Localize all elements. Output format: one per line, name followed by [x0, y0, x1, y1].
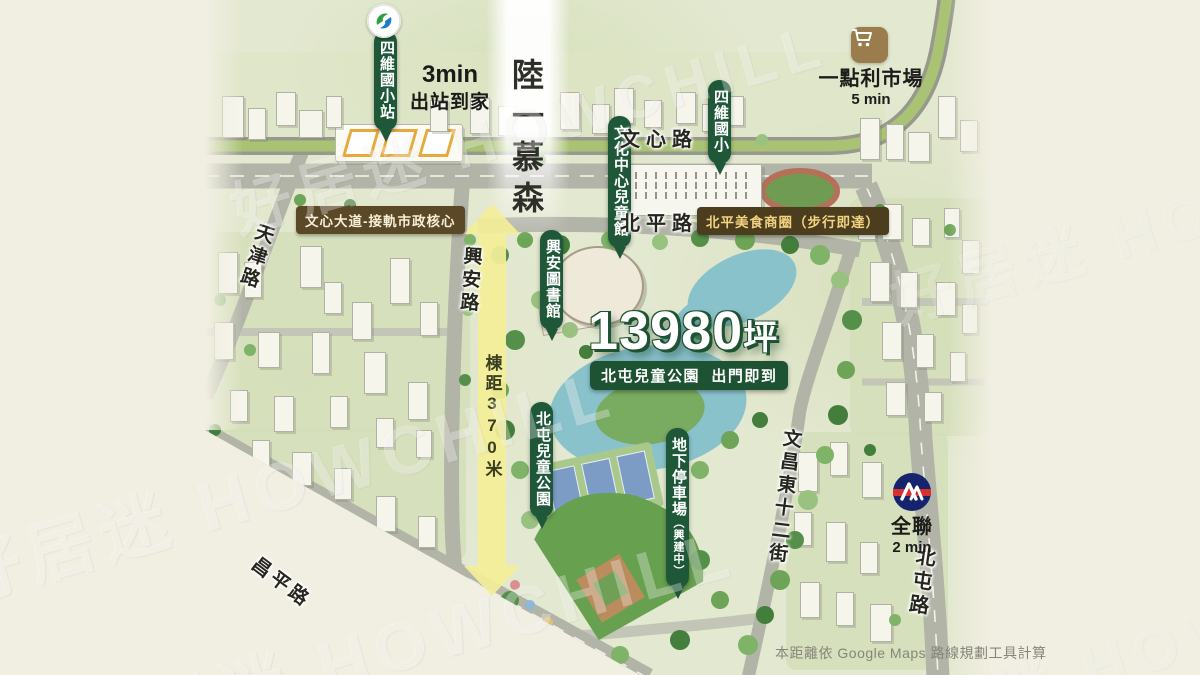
tree — [756, 134, 768, 146]
tree — [798, 490, 818, 510]
market-name: 全聯 — [882, 510, 942, 539]
poi-pill-parking: 地下停車場（興建中） — [666, 428, 689, 588]
playground-dot — [525, 600, 535, 610]
poi-pill-label: 地下停車場 — [670, 437, 687, 517]
building — [416, 430, 432, 458]
building — [258, 332, 280, 368]
road-label-wenxin: 文心路 — [620, 123, 698, 152]
park-area-figure: 13980坪 — [588, 300, 777, 362]
tree — [690, 550, 710, 570]
building — [800, 582, 820, 618]
tree — [889, 614, 901, 626]
tree — [652, 234, 668, 250]
building — [908, 132, 930, 162]
building — [214, 322, 234, 360]
building — [252, 440, 270, 476]
building — [924, 392, 942, 422]
tree — [756, 606, 774, 624]
building — [276, 92, 296, 126]
building — [962, 304, 978, 334]
poi-pill-label: 興安圖書館 — [544, 239, 561, 319]
tree — [711, 591, 729, 609]
station-walk-claim: 3min 出站到家 — [402, 62, 498, 114]
tree — [810, 245, 830, 265]
tree — [244, 344, 256, 356]
building — [836, 592, 854, 626]
building — [324, 282, 342, 314]
poi-pill-siwei-station: 四維國小站 — [374, 31, 397, 131]
building — [346, 520, 362, 546]
tree — [505, 330, 525, 350]
building — [950, 352, 966, 382]
tree — [864, 444, 876, 456]
area-unit: 坪 — [743, 319, 777, 357]
road-label-xingan: 興安路 — [454, 245, 486, 316]
building — [936, 282, 956, 316]
poi-pill-label: 北屯兒童公園 — [534, 411, 551, 507]
building — [862, 462, 882, 498]
tree — [738, 635, 758, 655]
station-pill-label: 四維國小站 — [378, 40, 395, 120]
building — [334, 468, 352, 500]
tree — [721, 431, 739, 449]
tree — [670, 630, 690, 650]
poi-pill-beitun-park: 北屯兒童公園 — [530, 402, 553, 518]
building — [299, 110, 323, 138]
banner-wenxin-blvd: 文心大道-接軌市政核心 — [296, 206, 465, 234]
building — [420, 302, 438, 336]
building — [222, 96, 244, 138]
building — [274, 396, 294, 432]
tree — [501, 591, 519, 609]
distance-disclaimer: 本距離依 Google Maps 路線規劃工具計算 — [775, 643, 1047, 663]
banner-beiping-food: 北平美食商圈（步行即達） — [697, 207, 889, 235]
road-label-changping: 昌平路 — [247, 550, 318, 613]
building — [300, 500, 316, 528]
tree — [816, 446, 834, 464]
building — [826, 522, 846, 562]
market-callout-yidianli: 一點利市場 5 min — [816, 62, 926, 108]
building — [916, 334, 934, 368]
playground-dot — [543, 617, 553, 627]
project-name: 陸一慕森 — [503, 58, 549, 222]
building — [390, 258, 410, 304]
distance-arrow-label: 棟距370米 — [480, 354, 505, 480]
building — [962, 240, 980, 274]
school-track — [763, 171, 837, 211]
market-name: 一點利市場 — [816, 62, 926, 91]
building — [364, 352, 386, 394]
building — [330, 396, 348, 428]
tree — [781, 236, 799, 254]
market-time: 2 min — [882, 539, 942, 556]
building — [676, 92, 696, 124]
poi-pill-siwei-school: 四維國小 — [708, 80, 731, 164]
building — [938, 96, 956, 138]
building — [860, 542, 878, 574]
tree — [562, 322, 578, 338]
station-walk-time: 3min — [402, 62, 498, 87]
park-claim-banner: 北屯兒童公園 出門即到 — [590, 361, 788, 390]
building — [376, 496, 396, 532]
building — [312, 332, 330, 374]
building — [418, 516, 436, 548]
building — [912, 218, 930, 246]
building — [292, 452, 312, 486]
road-label-beiping: 北平路 — [620, 207, 698, 236]
area-number: 13980 — [588, 301, 743, 361]
building — [886, 382, 906, 416]
poi-pill-sublabel: （興建中） — [672, 517, 684, 577]
building — [870, 604, 892, 642]
building — [882, 322, 902, 360]
poi-pill-xingan-library: 興安圖書館 — [540, 230, 563, 330]
market-callout-pxmart: 全聯 2 min — [882, 510, 942, 556]
poi-pill-label: 四維國小 — [712, 89, 729, 153]
metro-logo-icon — [367, 4, 401, 38]
shopping-cart-icon — [851, 27, 888, 63]
building — [376, 418, 394, 448]
tree — [611, 646, 629, 664]
building — [900, 272, 918, 308]
building — [886, 124, 904, 160]
market-time: 5 min — [816, 91, 926, 108]
tree — [842, 310, 862, 330]
building — [300, 246, 322, 288]
building — [960, 120, 978, 152]
building — [870, 262, 890, 302]
tree — [770, 570, 790, 590]
tree — [837, 361, 855, 379]
tree — [511, 461, 529, 479]
tree — [209, 424, 221, 436]
tree — [294, 194, 306, 206]
tree — [214, 294, 226, 306]
station-walk-text: 出站到家 — [402, 87, 498, 114]
tree — [752, 412, 768, 428]
tree — [831, 271, 849, 289]
building — [326, 96, 342, 128]
building — [408, 382, 428, 420]
building — [230, 390, 248, 422]
tree — [944, 224, 956, 236]
building — [860, 118, 880, 160]
building — [352, 302, 372, 340]
tree — [459, 374, 471, 386]
tree — [550, 640, 570, 660]
tree — [464, 234, 476, 246]
building — [248, 108, 266, 140]
pxmart-logo-icon — [892, 472, 932, 512]
playground-dot — [510, 580, 520, 590]
tree — [828, 405, 848, 425]
tree — [691, 461, 709, 479]
illustrated-location-map: 陸一慕森 棟距370米 四維國小站 3min 出站到家 一點利市場 5 min … — [0, 0, 1200, 675]
